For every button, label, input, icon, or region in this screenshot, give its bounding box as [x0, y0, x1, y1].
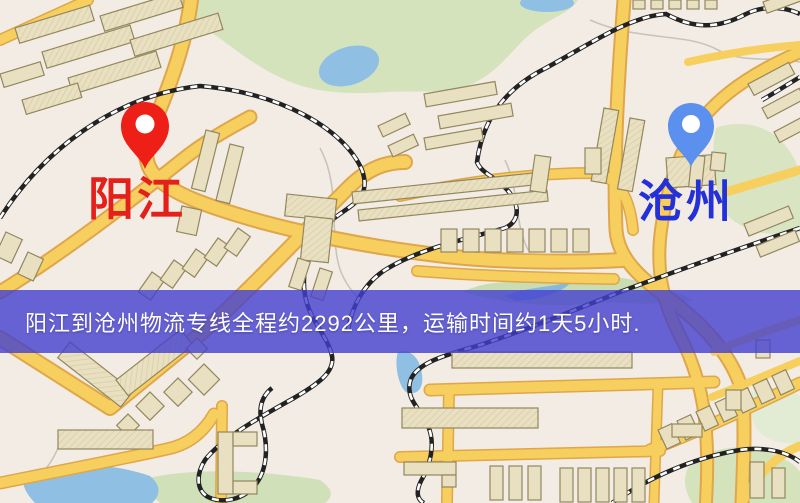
building [402, 408, 538, 428]
destination-city-label: 沧州 [638, 179, 734, 224]
building [710, 152, 726, 171]
building [300, 216, 332, 263]
building [233, 481, 257, 494]
building [687, 0, 699, 9]
building [58, 430, 153, 449]
route-info-banner: 阳江到沧州物流专线全程约2292公里，运输时间约1天5小时. [0, 290, 800, 353]
building [233, 432, 257, 446]
building [672, 424, 702, 437]
building [404, 462, 456, 475]
building [463, 229, 479, 252]
building [490, 466, 503, 500]
building [442, 475, 456, 487]
building [750, 462, 764, 498]
building [726, 390, 741, 410]
map-screenshot: 阳江到沧州物流专线全程约2292公里，运输时间约1天5小时. 阳江 沧州 [0, 0, 800, 503]
building [596, 468, 609, 502]
building [560, 468, 573, 502]
building [485, 229, 501, 252]
destination-pin-hole [682, 115, 700, 133]
route-info-text: 阳江到沧州物流专线全程约2292公里，运输时间约1天5小时. [25, 306, 641, 338]
building [529, 229, 545, 252]
building [218, 432, 233, 494]
origin-city-label: 阳江 [88, 176, 186, 222]
building [509, 466, 522, 500]
origin-pin-hole [136, 115, 155, 134]
building [705, 0, 717, 9]
building [772, 468, 785, 498]
building [651, 0, 663, 9]
building [551, 229, 567, 252]
building [633, 0, 645, 9]
road [400, 451, 660, 457]
building [452, 352, 632, 368]
building [669, 0, 681, 9]
building [585, 148, 601, 174]
building [528, 466, 541, 500]
building [578, 468, 591, 502]
building [632, 468, 645, 502]
road [437, 256, 622, 259]
building [441, 229, 457, 252]
map-canvas[interactable] [0, 0, 800, 503]
building [573, 229, 589, 252]
building [507, 229, 523, 252]
building [614, 468, 627, 502]
